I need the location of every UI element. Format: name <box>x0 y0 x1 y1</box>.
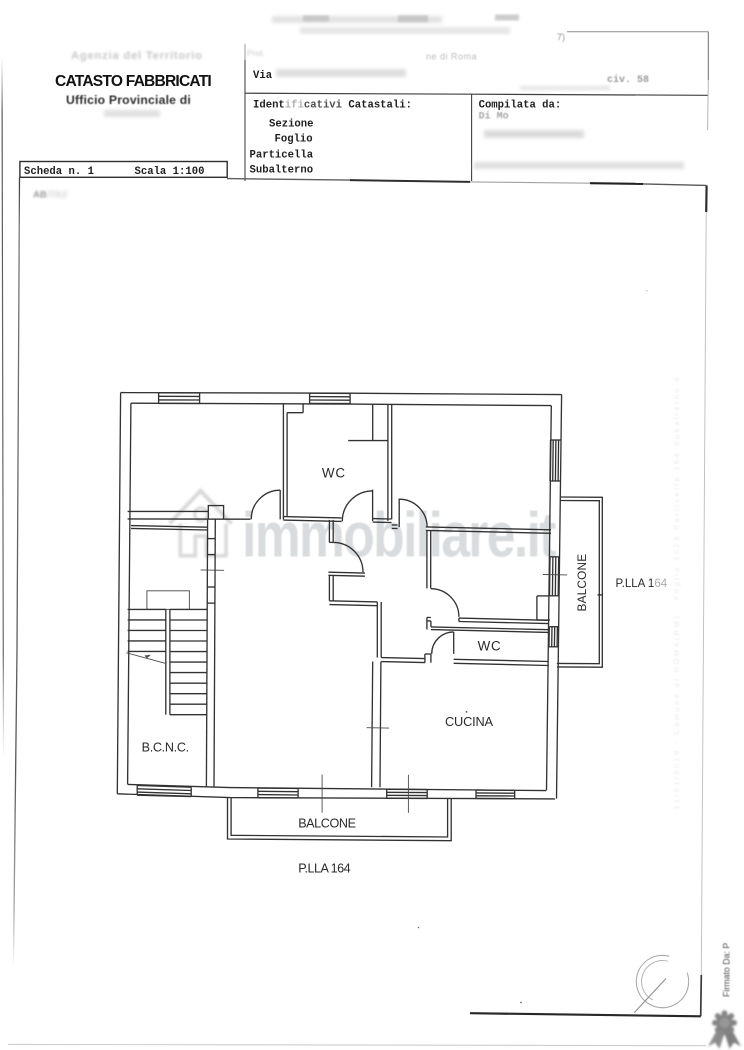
svg-text:AB: AB <box>33 190 47 201</box>
svg-text:WC: WC <box>478 638 502 653</box>
svg-text:Identificativi Catastali:: Identificativi Catastali: <box>253 99 412 111</box>
svg-text:Firmato Da: P: Firmato Da: P <box>722 943 732 997</box>
svg-text:ITAZ: ITAZ <box>47 190 68 201</box>
svg-text:Particella: Particella <box>250 149 314 161</box>
svg-text:31/01/2019 - Comune di ROMA(RM: 31/01/2019 - Comune di ROMA(RM) - Foglio… <box>672 375 681 810</box>
svg-text:Ufficio Provinciale di: Ufficio Provinciale di <box>66 93 191 107</box>
svg-text:CATASTO FABBRICATI: CATASTO FABBRICATI <box>55 73 211 90</box>
svg-text:Foglio: Foglio <box>275 134 313 146</box>
svg-text:P.LLA 164: P.LLA 164 <box>616 578 668 590</box>
svg-text:B.C.N.C.: B.C.N.C. <box>142 741 189 755</box>
svg-text:Compilata da:: Compilata da: <box>479 99 562 111</box>
svg-text:Subalterno: Subalterno <box>250 165 314 177</box>
svg-text:Scala 1:100: Scala 1:100 <box>135 166 205 178</box>
svg-text:P.LLA 164: P.LLA 164 <box>298 862 350 876</box>
svg-text:Sezione: Sezione <box>269 119 314 131</box>
svg-text:Prot.: Prot. <box>247 48 265 58</box>
svg-text:WC: WC <box>322 465 346 480</box>
svg-text:civ. 58: civ. 58 <box>607 74 649 86</box>
svg-text:BALCONE: BALCONE <box>575 554 589 612</box>
svg-text:Agenzia del Territorio: Agenzia del Territorio <box>71 50 203 62</box>
svg-text:Scheda n. 1: Scheda n. 1 <box>24 166 94 178</box>
svg-text:Di Mo: Di Mo <box>479 111 509 123</box>
svg-text:Via: Via <box>253 70 273 82</box>
svg-text:ne di Roma: ne di Roma <box>426 52 477 62</box>
svg-text:CUCINA: CUCINA <box>445 714 494 729</box>
svg-text:BALCONE: BALCONE <box>298 816 355 830</box>
svg-text:7): 7) <box>557 32 565 42</box>
